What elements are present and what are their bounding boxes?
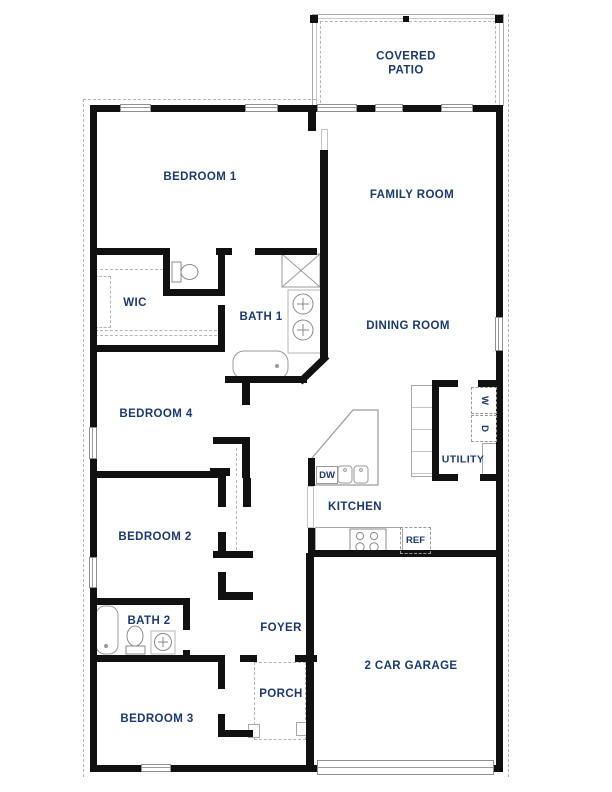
window-bedroom2 (89, 557, 97, 588)
room-label-family-room: FAMILY ROOM (370, 188, 454, 202)
garage-door (317, 760, 494, 775)
wall-utility-north (478, 380, 498, 387)
window-dining-room (495, 317, 503, 351)
wall-watercloset-west (163, 248, 170, 295)
wall-garage-west (306, 553, 314, 772)
wall-porch-south-stub (218, 730, 253, 737)
wall-bedroom2-east (218, 478, 226, 507)
wall-utility-west (432, 380, 439, 481)
bath1-vanity (288, 290, 321, 353)
hall-opening-casing (307, 486, 314, 528)
room-label-bath2: BATH 2 (127, 614, 170, 628)
wall-bedroom2-closet-east (243, 478, 251, 507)
wall-bedroom1-east-stub (308, 105, 316, 131)
wall-foyer-south (240, 655, 257, 662)
room-label-wic: WIC (123, 296, 147, 310)
wall-hall-closet-east (242, 437, 250, 478)
wall-utility-south (432, 474, 458, 481)
wall-bedroom3-east (218, 662, 225, 689)
wall-familyroom-west (320, 150, 328, 360)
refrigerator: REF (400, 527, 431, 554)
wall-kitchen-west-stub (308, 458, 315, 486)
roofline-left (83, 99, 84, 777)
room-label-kitchen: KITCHEN (328, 500, 382, 514)
room-label-bedroom4: BEDROOM 4 (119, 407, 192, 421)
dishwasher-label: DW (319, 470, 335, 481)
bath1-toilet (172, 262, 198, 282)
wic-rod-bottom (95, 330, 217, 336)
patio-post (403, 16, 409, 22)
patio-post (310, 15, 318, 23)
shower (282, 254, 320, 287)
wall-bedroom3-north (90, 655, 225, 662)
hall-closet-rod (236, 448, 237, 476)
room-label-covered-patio: COVERED PATIO (360, 50, 452, 79)
dryer-label: D (479, 425, 490, 432)
bath2-toilet (126, 626, 145, 654)
wall-bath1-south (225, 376, 307, 383)
dishwasher: DW (316, 466, 338, 484)
bath1-sinks (293, 294, 313, 340)
wall-watercloset-south (163, 289, 225, 296)
room-label-bedroom2: BEDROOM 2 (118, 530, 191, 544)
window-bedroom1 (245, 104, 278, 112)
window-family-room (375, 104, 403, 112)
bath2-tub (96, 606, 118, 654)
window-bedroom1 (120, 104, 151, 112)
wall-wic-east (218, 248, 225, 295)
bedroom2-closet-rod (236, 480, 237, 550)
wall-bedroom1-south (90, 248, 168, 255)
patio-door (317, 104, 357, 112)
wall-bedroom4-north (90, 345, 222, 352)
wall-utility-north (432, 380, 458, 387)
window-bedroom4 (89, 427, 97, 459)
bath1-tub (233, 351, 288, 379)
room-label-bedroom1: BEDROOM 1 (163, 170, 236, 184)
floor-plan: DW REF W D COVERED PATIO BEDROOM 1 FAMIL… (0, 0, 612, 792)
room-label-dining-room: DINING ROOM (366, 319, 450, 333)
room-label-bedroom3: BEDROOM 3 (120, 712, 193, 726)
roofline-right (508, 14, 509, 777)
wall-hall-foyer-north (213, 551, 253, 558)
wic-shelf (95, 276, 111, 328)
room-label-utility: UTILITY (442, 453, 484, 466)
wall-hall-south-stub (225, 592, 253, 600)
washer: W (471, 387, 497, 414)
wall-bath2-north (90, 598, 190, 605)
washer-label: W (479, 396, 490, 405)
pantry-cabinet (411, 385, 433, 477)
room-label-porch: PORCH (259, 687, 303, 701)
bath1-opening-casing (321, 129, 328, 151)
dryer: D (471, 415, 497, 442)
wall-hall-stub (242, 383, 250, 405)
wall-bedroom4-south (90, 471, 226, 478)
roofline-top (83, 99, 316, 100)
kitchen-sink (338, 466, 368, 483)
room-label-foyer: FOYER (260, 621, 302, 635)
patio-post (495, 15, 503, 23)
wall-utility-south (480, 474, 498, 481)
bath2-sink (151, 631, 175, 654)
wall-exterior-right (496, 105, 503, 772)
wic-rod-top (95, 269, 163, 270)
refrigerator-label: REF (406, 535, 425, 546)
wall-bath2-east (183, 598, 190, 630)
room-label-garage: 2 CAR GARAGE (365, 659, 458, 673)
room-label-bath1: BATH 1 (239, 310, 282, 324)
window-bedroom3 (141, 764, 171, 772)
wall-bath1-north (255, 248, 317, 255)
window-family-room (441, 104, 473, 112)
